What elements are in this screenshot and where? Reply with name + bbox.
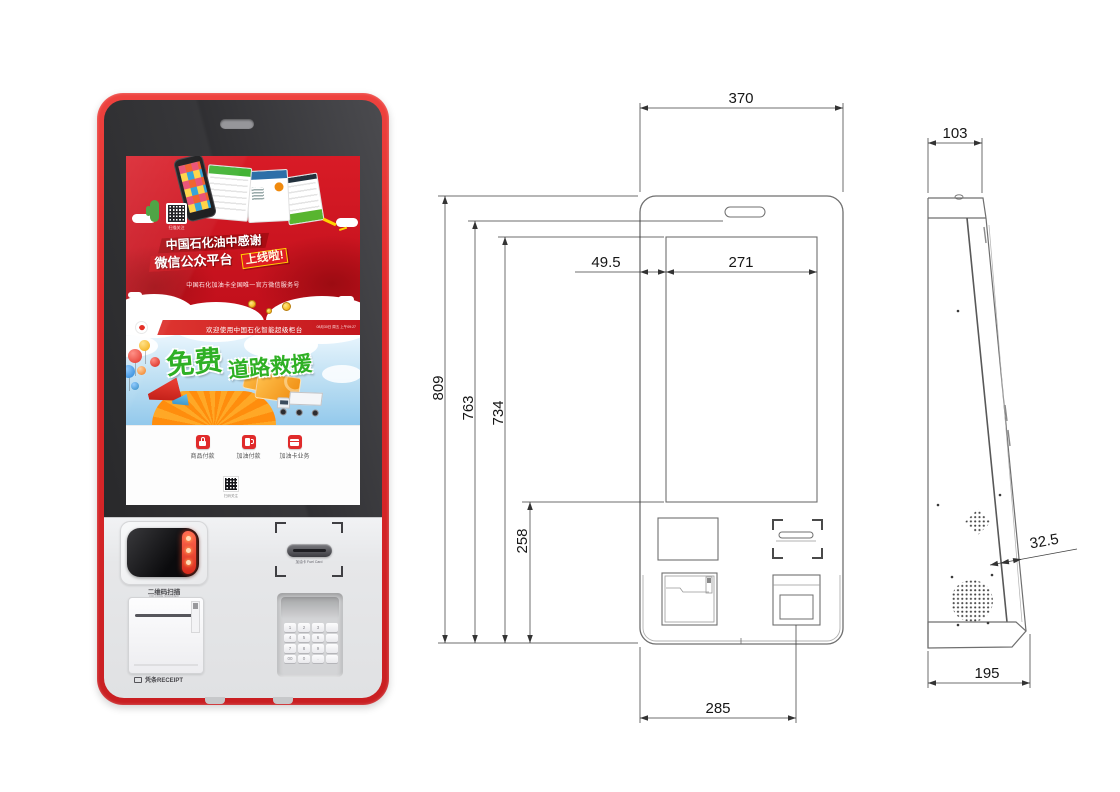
ad-qr-caption: 扫描关注: [162, 225, 191, 231]
foot-tab: [273, 697, 293, 704]
header-datetime: 08月30日 周五 上午09:27: [317, 325, 357, 330]
balloon-graphic: [150, 357, 160, 367]
ad-qr-code: [166, 203, 187, 224]
keypad-key: [326, 623, 338, 632]
qr-scanner: [127, 528, 199, 577]
keypad-recess-shadow: [281, 597, 339, 619]
paper-slot: [135, 614, 193, 617]
receipt-label-row: 凭条RECEIPT: [134, 675, 183, 684]
card-icon: [288, 435, 302, 449]
bracket-corner-icon: [275, 522, 286, 533]
printer-lip: [134, 664, 198, 666]
balloon-string: [129, 377, 130, 391]
front-keypad: [773, 575, 820, 625]
tow-truck-graphic: [276, 390, 325, 420]
speaker-slot: [220, 119, 254, 129]
speaker-grille-large: [951, 580, 993, 622]
sinopec-logo: [135, 321, 148, 334]
dim-bottom-depth: 195: [974, 665, 999, 682]
balloon-graphic: [131, 382, 139, 390]
printer-latch: [191, 601, 200, 633]
receipt-printer: [128, 597, 204, 674]
balloon-graphic: [128, 349, 142, 363]
keypad-key: 6: [312, 634, 324, 643]
coin-graphic: [282, 302, 291, 311]
action-button-row: 商品付款 加油付款 加油卡业务: [185, 435, 312, 460]
kiosk-bezel: 扫描关注 中国石化油中感谢 微信公众平台 上线啦! 中国石化加油卡全国唯一官方微…: [104, 100, 382, 517]
cloud-graphic: [322, 365, 360, 383]
printer-icon: [134, 677, 142, 683]
promo-section: 免费 道路救援: [126, 335, 360, 425]
dim-screen-offset: 49.5: [591, 254, 620, 271]
balloon-string: [145, 350, 146, 364]
keypad-key: 8: [298, 644, 310, 653]
action-button: 加油卡业务: [277, 435, 312, 460]
front-card-reader: [773, 520, 822, 558]
pump-icon: [242, 435, 256, 449]
dim-slot-height: 763: [460, 395, 477, 420]
front-printer: [662, 573, 717, 625]
led-light: [186, 560, 191, 565]
front-speaker-slot: [725, 207, 765, 217]
button-label: 加油卡业务: [277, 451, 312, 460]
keypad-key: 0: [298, 655, 310, 664]
kiosk-lower-body: 二维码扫描 QR CODE SCANNER 凭条RECEIPT 加油卡 Fuel…: [104, 517, 382, 698]
cactus-graphic: [150, 200, 159, 222]
ad-banner-badge: 上线啦!: [241, 247, 289, 268]
dim-lower-height: 258: [514, 528, 531, 553]
speaker-grille-small: [965, 509, 991, 535]
keypad-keys: 1 2 3 4 5 6 7 8 9 00 0 .: [284, 623, 338, 663]
bracket-corner-icon: [275, 566, 286, 577]
dim-top-width: 370: [728, 90, 753, 107]
scanner-led-ring: [182, 531, 196, 574]
side-dimensions: [928, 138, 1077, 688]
action-button: 商品付款: [185, 435, 220, 460]
bag-icon: [196, 435, 210, 449]
keypad-key: 2: [298, 623, 310, 632]
balloon-graphic: [139, 340, 150, 351]
coin-graphic: [248, 300, 256, 308]
keypad-panel: 1 2 3 4 5 6 7 8 9 00 0 .: [277, 593, 343, 677]
receipt-label: 凭条RECEIPT: [145, 675, 183, 684]
menu-section: 商品付款 加油付款 加油卡业务 扫码关注: [126, 425, 360, 505]
spark-icon: [323, 218, 337, 226]
keypad-key: 4: [284, 634, 296, 643]
dim-bottom-width: 285: [705, 700, 730, 717]
screen-header-bar: 欢迎使用中国石化智能超级柜台 08月30日 周五 上午09:27: [126, 320, 360, 335]
side-view-drawing: 103 32.5 195: [900, 85, 1100, 735]
front-scanner-rect: [658, 518, 718, 560]
keypad-key: [326, 644, 338, 653]
keypad-key: 00: [284, 655, 296, 664]
bracket-corner-icon: [332, 522, 343, 533]
foot-tab: [205, 697, 225, 704]
action-button: 加油付款: [231, 435, 266, 460]
ad-banner: 中国石化油中感谢 微信公众平台 上线啦!: [137, 226, 351, 272]
kiosk-screen: 扫描关注 中国石化油中感谢 微信公众平台 上线啦! 中国石化加油卡全国唯一官方微…: [126, 156, 360, 505]
front-screen-rect: [666, 237, 817, 502]
card-slot: [287, 544, 332, 557]
card-slot-label: 加油卡 Fuel Card: [275, 560, 343, 565]
keypad-key: 9: [312, 644, 324, 653]
keypad-key: [326, 634, 338, 643]
side-base: [928, 622, 1026, 648]
front-view-drawing: 370 49.5 271 809 763 734 258 285: [430, 85, 875, 735]
led-light: [186, 536, 191, 541]
led-light: [186, 548, 191, 553]
keypad-key: 5: [298, 634, 310, 643]
button-label: 商品付款: [185, 451, 220, 460]
kiosk-product-photo: 扫描关注 中国石化油中感谢 微信公众平台 上线啦! 中国石化加油卡全国唯一官方微…: [97, 93, 389, 705]
ad-subline: 中国石化加油卡全国唯一官方微信服务号: [150, 280, 336, 289]
app-screenshot-panel: [246, 169, 291, 223]
keypad-key: 3: [312, 623, 324, 632]
balloon-graphic: [137, 366, 146, 375]
keypad-key: .: [312, 655, 324, 664]
screen-qr-caption: 扫码关注: [209, 494, 253, 499]
balloon-graphic: [126, 365, 135, 378]
keypad-key: 7: [284, 644, 296, 653]
keypad-key: [326, 655, 338, 664]
dim-panel-thickness: 32.5: [1028, 531, 1060, 553]
balloon-string: [135, 362, 136, 376]
ad-section: 扫描关注 中国石化油中感谢 微信公众平台 上线啦! 中国石化加油卡全国唯一官方微…: [126, 156, 360, 320]
side-outline: [928, 195, 1026, 648]
bracket-corner-icon: [332, 566, 343, 577]
dim-total-height: 809: [430, 375, 447, 400]
coin-graphic: [266, 308, 272, 314]
header-title: 欢迎使用中国石化智能超级柜台: [206, 324, 303, 334]
dim-screen-height: 734: [490, 400, 507, 425]
promo-text-free: 免费: [164, 339, 223, 384]
dim-top-depth: 103: [942, 125, 967, 142]
ad-banner-line2: 微信公众平台: [148, 251, 239, 272]
dim-screen-width: 271: [728, 254, 753, 271]
button-label: 加油付款: [231, 451, 266, 460]
spark-icon: [339, 227, 347, 231]
screen-qr-code: [223, 476, 239, 492]
keypad-key: 1: [284, 623, 296, 632]
